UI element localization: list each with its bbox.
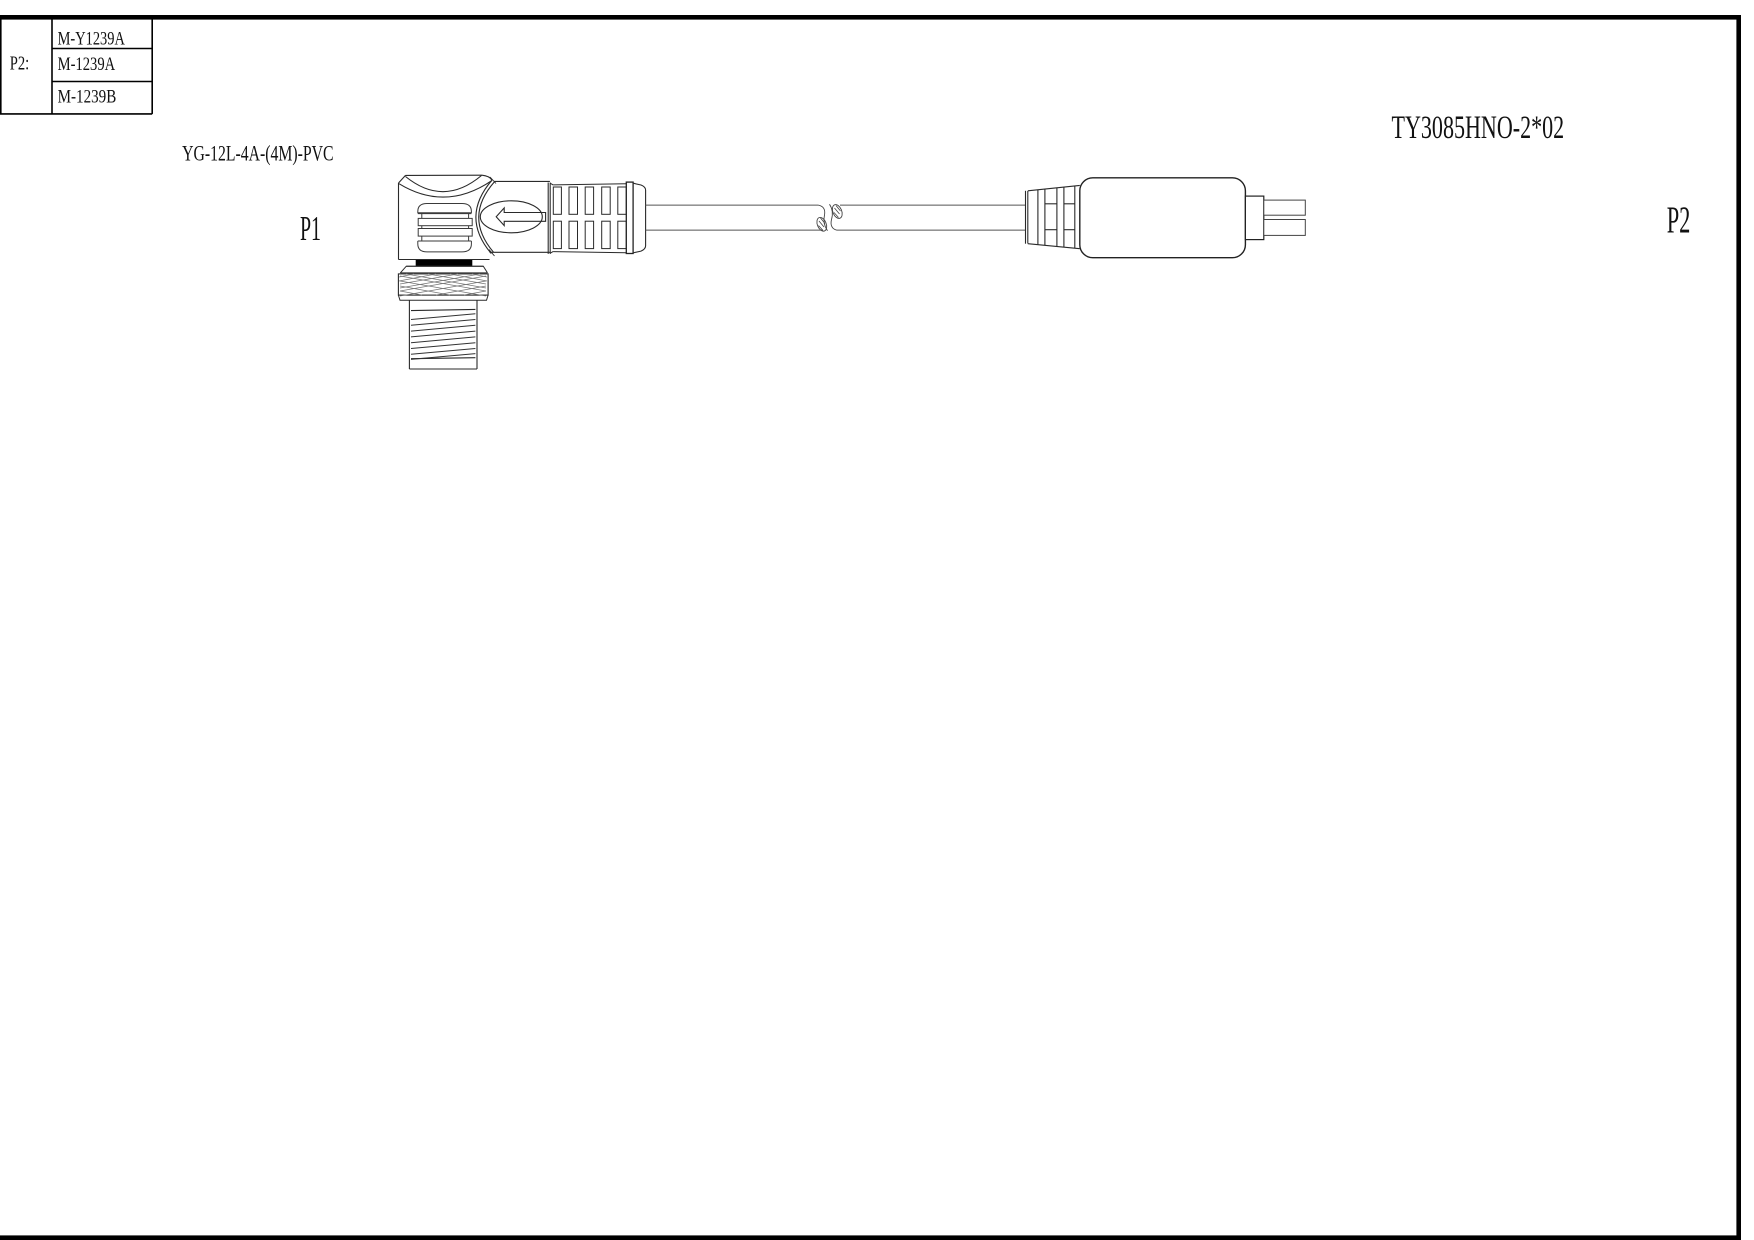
svg-text:P2:: P2: xyxy=(10,53,30,75)
svg-text:M-1239A: M-1239A xyxy=(58,54,116,75)
svg-text:M-1239B: M-1239B xyxy=(58,87,117,108)
svg-text:TY3085HNO-2*02: TY3085HNO-2*02 xyxy=(1392,110,1565,146)
svg-text:YG-12L-4A-(4M)-PVC: YG-12L-4A-(4M)-PVC xyxy=(182,140,333,165)
svg-text:P1: P1 xyxy=(300,209,321,248)
svg-text:P2: P2 xyxy=(1667,199,1691,241)
svg-text:M-Y1239A: M-Y1239A xyxy=(58,29,126,50)
